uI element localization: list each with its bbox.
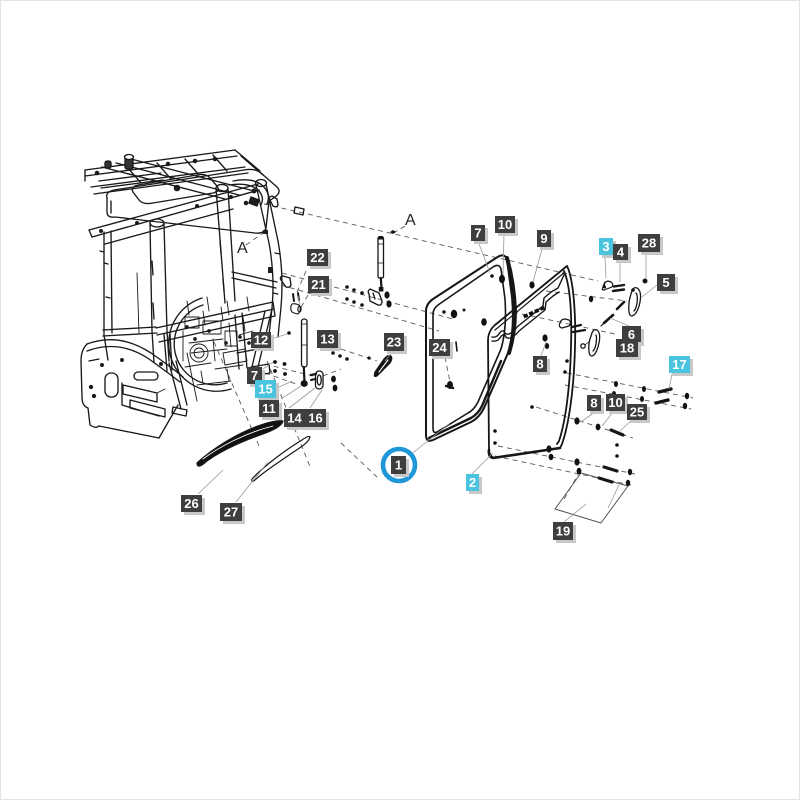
svg-text:16: 16 xyxy=(308,411,322,426)
svg-text:14: 14 xyxy=(287,411,302,426)
svg-text:12: 12 xyxy=(254,333,268,348)
svg-text:27: 27 xyxy=(224,505,238,520)
svg-text:21: 21 xyxy=(311,277,325,292)
svg-text:1: 1 xyxy=(395,458,402,473)
svg-text:8: 8 xyxy=(536,357,543,372)
svg-text:22: 22 xyxy=(310,250,324,265)
svg-text:4: 4 xyxy=(617,245,625,260)
svg-text:13: 13 xyxy=(320,332,334,347)
svg-text:9: 9 xyxy=(540,231,547,246)
svg-text:28: 28 xyxy=(642,236,656,251)
svg-text:19: 19 xyxy=(556,524,570,539)
svg-text:15: 15 xyxy=(258,382,272,397)
svg-text:7: 7 xyxy=(474,226,481,241)
svg-text:17: 17 xyxy=(672,357,686,372)
svg-text:11: 11 xyxy=(262,401,276,416)
svg-text:23: 23 xyxy=(387,335,401,350)
svg-text:8: 8 xyxy=(590,396,597,411)
svg-text:10: 10 xyxy=(498,217,512,232)
svg-text:2: 2 xyxy=(469,475,476,490)
svg-text:5: 5 xyxy=(662,275,669,290)
svg-text:26: 26 xyxy=(184,496,198,511)
svg-text:25: 25 xyxy=(630,405,644,420)
svg-text:24: 24 xyxy=(432,340,447,355)
svg-text:18: 18 xyxy=(620,341,634,356)
svg-text:10: 10 xyxy=(608,395,622,410)
svg-text:A: A xyxy=(237,240,248,257)
svg-text:3: 3 xyxy=(602,239,609,254)
svg-text:A: A xyxy=(405,212,416,229)
